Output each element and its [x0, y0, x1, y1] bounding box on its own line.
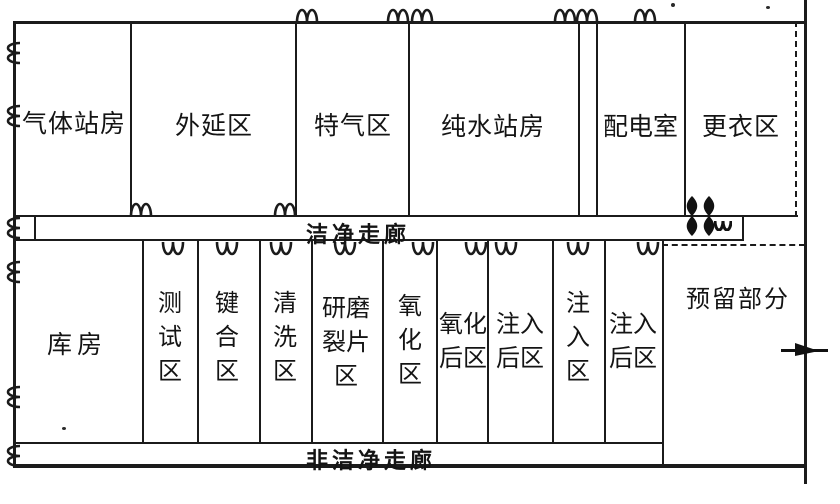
- wall-divider: [408, 21, 410, 217]
- wall-divider: [142, 239, 144, 444]
- door-swing-icon: [410, 8, 434, 22]
- wall-shaft-right: [596, 21, 598, 217]
- door-swing-icon: [464, 242, 488, 256]
- wall-divider: [130, 21, 132, 217]
- room-label-post-implant-2: 注入后区: [608, 308, 658, 376]
- door-swing-icon: [6, 444, 20, 468]
- room-label-pure-water-station: 纯水站房: [441, 107, 545, 143]
- wall-reserved-top-dashed: [662, 244, 805, 246]
- wall-divider: [311, 239, 313, 444]
- door-swing-icon: [494, 242, 518, 256]
- room-label-reserved: 预留部分: [686, 279, 790, 314]
- floor-plan: 气体站房 外延区 特气区 纯水站房 配电室 更衣区 洁净走廊 非洁净走廊 库房 …: [0, 0, 840, 504]
- room-label-grinding-dicing: 研磨裂片区: [320, 292, 372, 394]
- door-swing-icon: [215, 242, 239, 256]
- door-swing-filled-icon: [714, 221, 732, 231]
- room-label-epitaxy: 外延区: [175, 106, 253, 142]
- door-swing-icon: [6, 104, 20, 128]
- door-swing-icon: [129, 202, 153, 216]
- door-swing-icon: [295, 8, 319, 22]
- room-label-bonding: 键合区: [214, 287, 240, 389]
- room-label-post-oxidation: 氧化后区: [438, 308, 488, 376]
- corridor-label-non-clean: 非洁净走廊: [306, 443, 436, 475]
- room-label-testing: 测试区: [157, 287, 183, 389]
- ink-speck: [62, 427, 66, 430]
- wall-divider: [604, 239, 606, 444]
- door-swing-icon: [411, 242, 435, 256]
- wall-divider: [382, 239, 384, 444]
- wall-right: [804, 0, 807, 484]
- corridor-label-clean: 洁净走廊: [306, 217, 410, 249]
- door-swing-icon: [386, 8, 410, 22]
- wall-divider: [197, 239, 199, 444]
- door-swing-icon: [269, 242, 293, 256]
- wall-divider: [684, 21, 686, 217]
- room-label-post-implant-1: 注入后区: [495, 308, 545, 376]
- door-swing-icon: [6, 385, 20, 409]
- room-label-warehouse: 库房: [47, 325, 107, 361]
- room-label-implant: 注入区: [565, 287, 591, 389]
- room-label-cleaning: 清洗区: [272, 287, 298, 389]
- room-label-gas-station: 气体站房: [22, 104, 126, 140]
- room-label-oxidation: 氧化区: [397, 290, 423, 392]
- wall-divider: [552, 239, 554, 444]
- door-swing-icon: [6, 216, 20, 240]
- door-swing-icon: [633, 8, 657, 22]
- door-swing-icon: [553, 8, 577, 22]
- ink-speck: [766, 6, 770, 9]
- ink-speck: [671, 3, 675, 7]
- door-swing-icon: [566, 242, 590, 256]
- room-label-special-gas: 特气区: [314, 106, 392, 142]
- wall-corridor-end: [742, 215, 744, 241]
- door-swing-icon: [575, 8, 599, 22]
- door-swing-icon: [6, 41, 20, 65]
- wall-divider: [295, 21, 297, 217]
- entrance-arrow-icon: [795, 343, 819, 356]
- door-swing-icon: [273, 202, 297, 216]
- wall-divider-dashed: [795, 21, 797, 217]
- room-label-changing-area: 更衣区: [702, 107, 780, 143]
- wall-reserved-left: [662, 239, 664, 466]
- door-swing-icon: [636, 242, 660, 256]
- door-swing-icon: [161, 242, 185, 256]
- wall-corridor-cell: [34, 215, 36, 241]
- room-label-power-distribution: 配电室: [603, 107, 678, 143]
- door-swing-icon: [6, 260, 20, 284]
- wall-divider: [259, 239, 261, 444]
- wall-shaft-left: [578, 21, 580, 217]
